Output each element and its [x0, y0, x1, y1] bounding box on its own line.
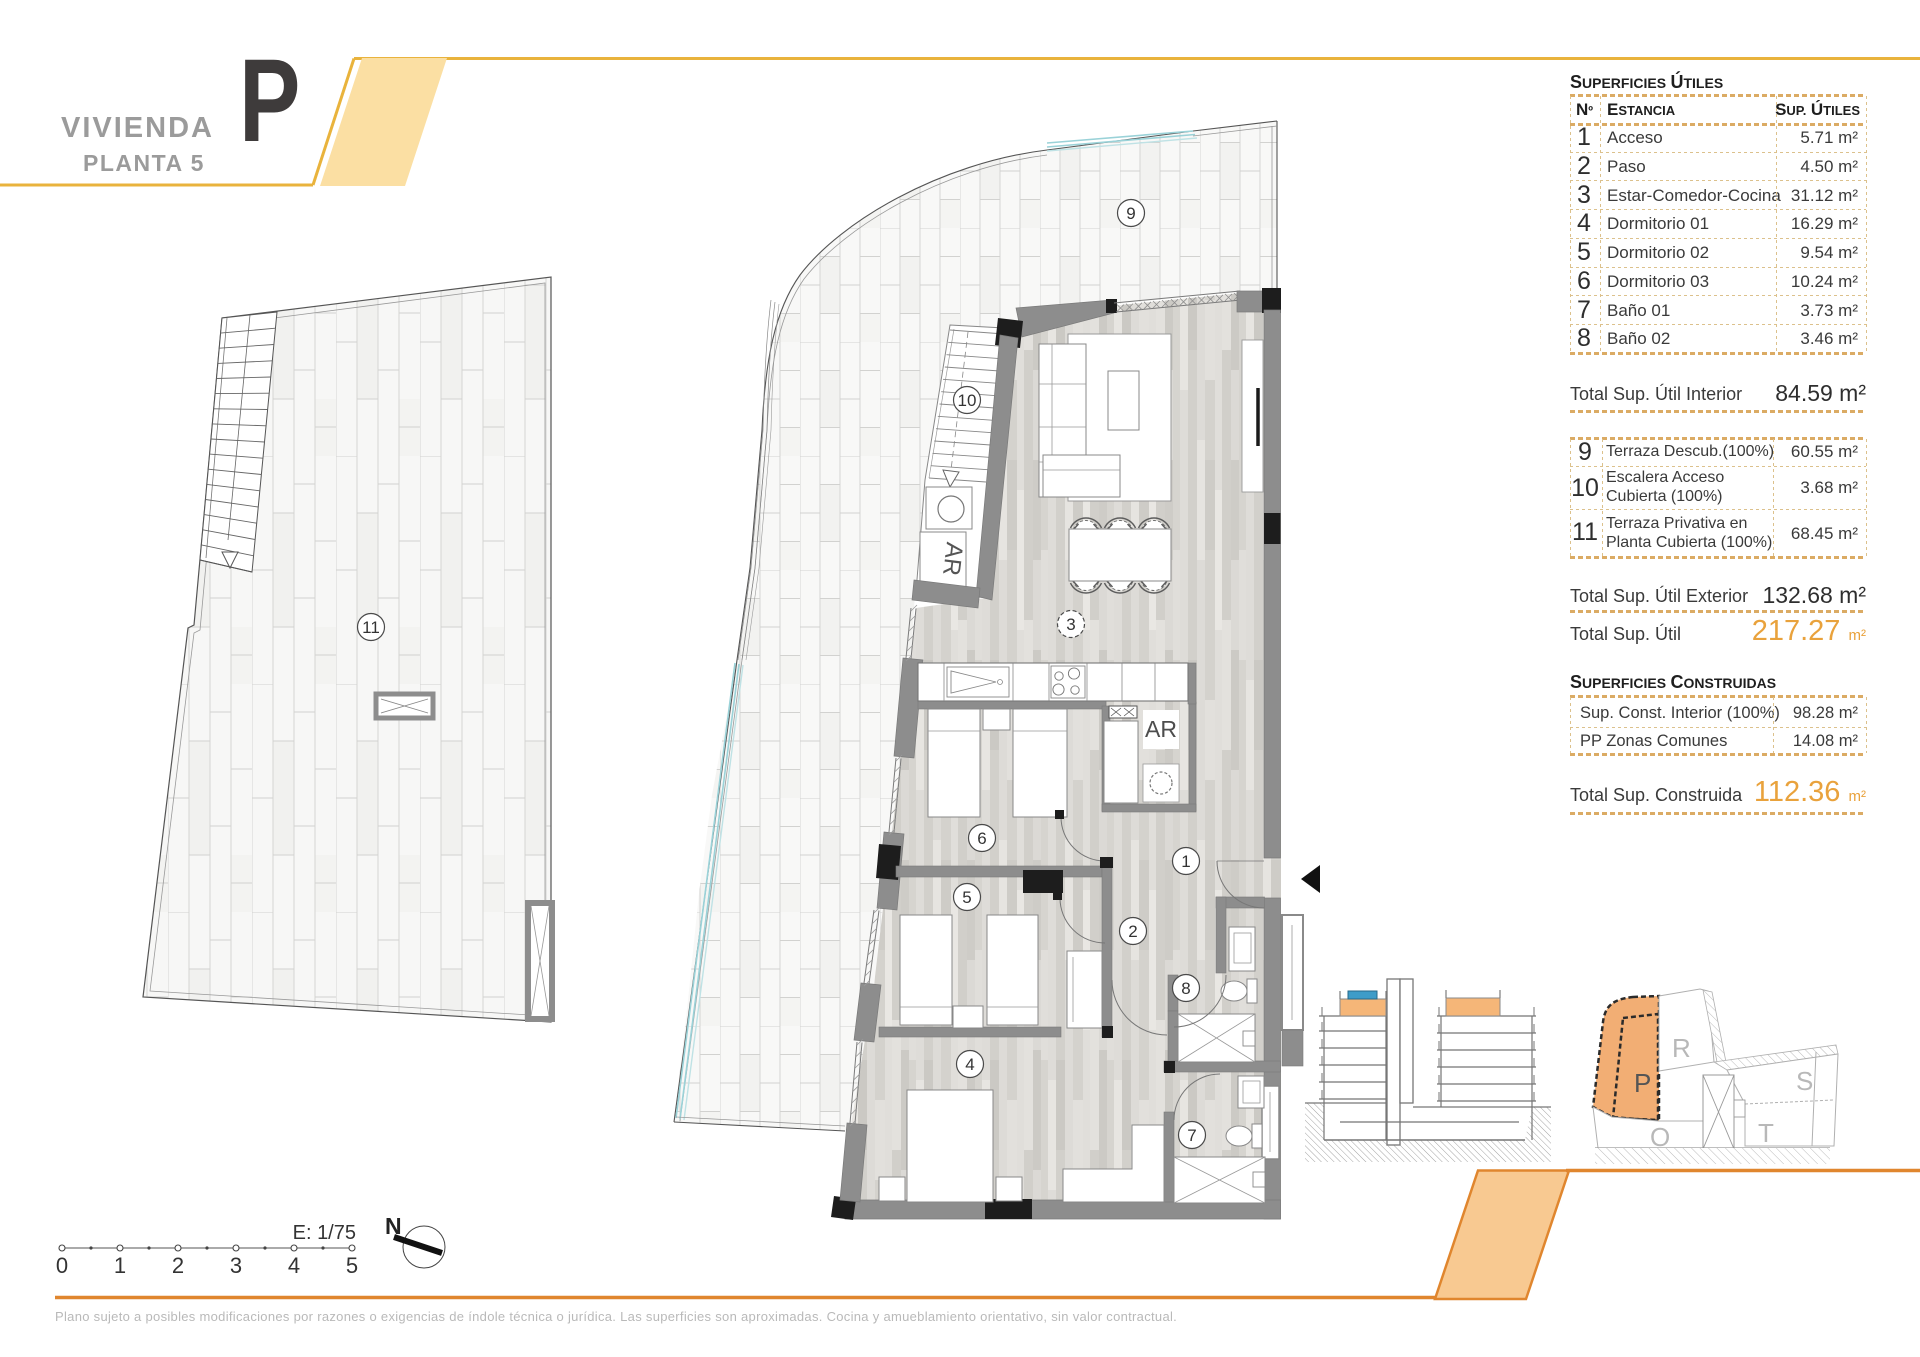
svg-text:AR: AR — [937, 541, 968, 577]
svg-text:10: 10 — [958, 391, 977, 410]
svg-text:4: 4 — [965, 1055, 974, 1074]
svg-text:3: 3 — [1066, 615, 1075, 634]
svg-text:9: 9 — [1126, 204, 1135, 223]
svg-text:T: T — [1758, 1118, 1774, 1148]
svg-text:S: S — [1796, 1066, 1813, 1096]
svg-text:6: 6 — [977, 829, 986, 848]
svg-text:11: 11 — [362, 618, 380, 637]
svg-text:AR: AR — [1145, 716, 1177, 742]
svg-text:R: R — [1672, 1033, 1691, 1063]
svg-text:2: 2 — [1128, 922, 1137, 941]
svg-text:P: P — [1634, 1068, 1651, 1098]
svg-text:5: 5 — [962, 888, 971, 907]
svg-text:1: 1 — [1181, 852, 1190, 871]
svg-text:8: 8 — [1181, 979, 1190, 998]
svg-text:7: 7 — [1187, 1126, 1196, 1145]
